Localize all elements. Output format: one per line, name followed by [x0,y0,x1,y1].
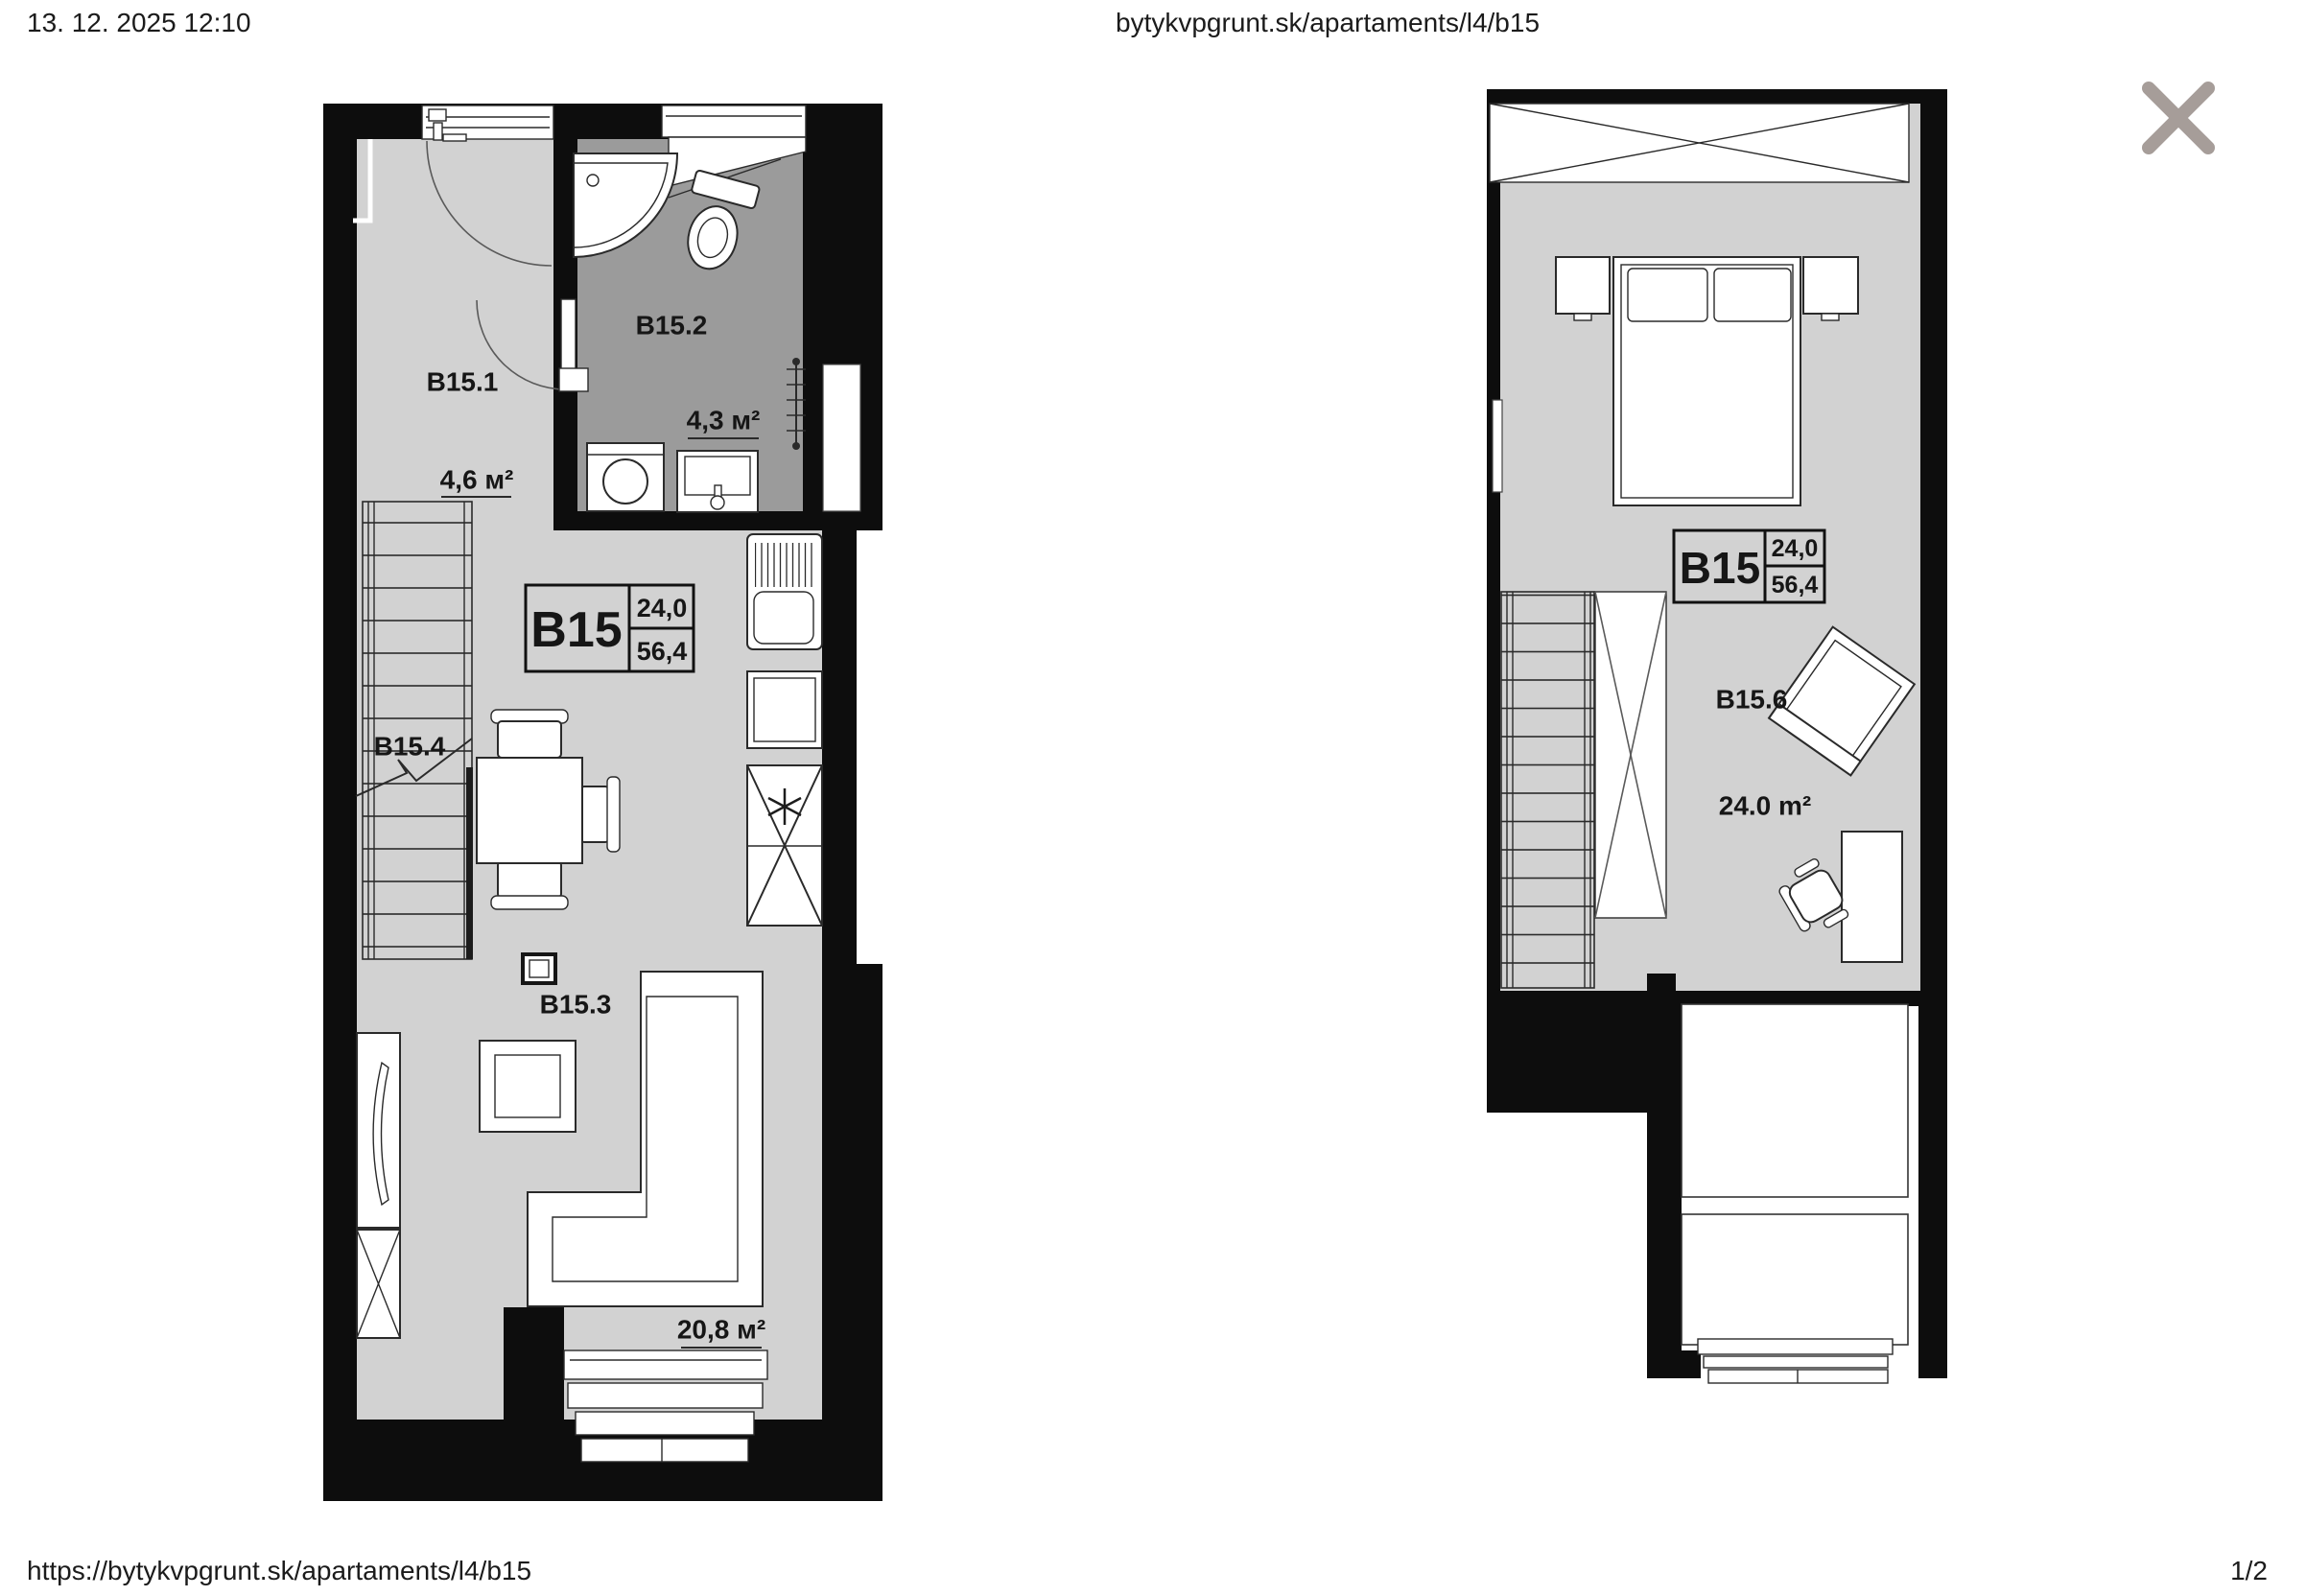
unit-area-bottom: 56,4 [637,637,688,666]
wardrobe [357,1230,400,1338]
stair-bottom-post [1647,974,1676,1006]
print-footer-url: https://bytykvpgrunt.sk/apartaments/l4/b… [27,1556,531,1586]
floor-hatch [523,954,555,983]
stove-unit [747,765,822,926]
unit-info-box-level-2: B15 24,0 56,4 [1674,530,1824,602]
kitchen-sink-unit [747,534,822,649]
duct-shaft [823,364,860,511]
unit-info-box-level-1: B15 24,0 56,4 [526,585,694,671]
room-area-living: 20,8 м² [677,1315,765,1345]
print-footer-page-number: 1/2 [2230,1556,2268,1586]
coffee-table [480,1041,576,1132]
room-area-hall: 4,6 м² [440,465,514,495]
print-preview-page: 13. 12. 2025 12:10 bytykvpgrunt.sk/apart… [0,0,2306,1596]
washing-machine [587,443,664,511]
kitchen-counter [747,671,822,748]
room-area-bathroom: 4,3 м² [687,406,761,435]
room-area-upper: 24.0 m² [1719,791,1812,821]
unit-area-bottom: 56,4 [1772,572,1819,598]
floor-plan-level-1: B15 24,0 56,4 B15.1 4,6 м² B15.2 4,3 м² … [323,104,882,1501]
unit-area-top: 24,0 [637,594,688,622]
unit-id: B15 [1680,543,1760,593]
room-label-upper: B15.6 [1716,685,1788,715]
desk [1842,832,1902,962]
bathroom-sink [677,451,758,512]
double-bed [1613,257,1800,505]
room-label-hall: B15.1 [427,367,499,397]
balcony-window [564,1350,767,1462]
stair-handrail [466,767,473,959]
nightstand-right [1803,257,1858,320]
nightstand-left [1556,257,1610,320]
floor-plan-level-2: B15 24,0 56,4 B15.6 24.0 m² [1487,89,1947,1383]
room-label-stairs: B15.4 [374,732,446,762]
side-window-slit [1493,400,1502,492]
tv-cabinet [357,1033,400,1228]
staircase-level-1 [356,502,473,959]
lower-window [1698,1339,1893,1383]
staircase-level-2 [1501,592,1594,988]
floor-plans-canvas: B15 24,0 56,4 B15.1 4,6 м² B15.2 4,3 м² … [0,0,2306,1596]
top-window [1490,104,1909,182]
unit-area-top: 24,0 [1772,535,1819,562]
room-label-bathroom: B15.2 [636,311,708,340]
room-label-living: B15.3 [540,990,612,1020]
bathroom-bottom-wall [553,511,882,530]
stair-void [1595,592,1666,918]
double-height-void [1682,1004,1908,1345]
wall-step [504,1307,564,1420]
unit-id: B15 [530,602,622,658]
